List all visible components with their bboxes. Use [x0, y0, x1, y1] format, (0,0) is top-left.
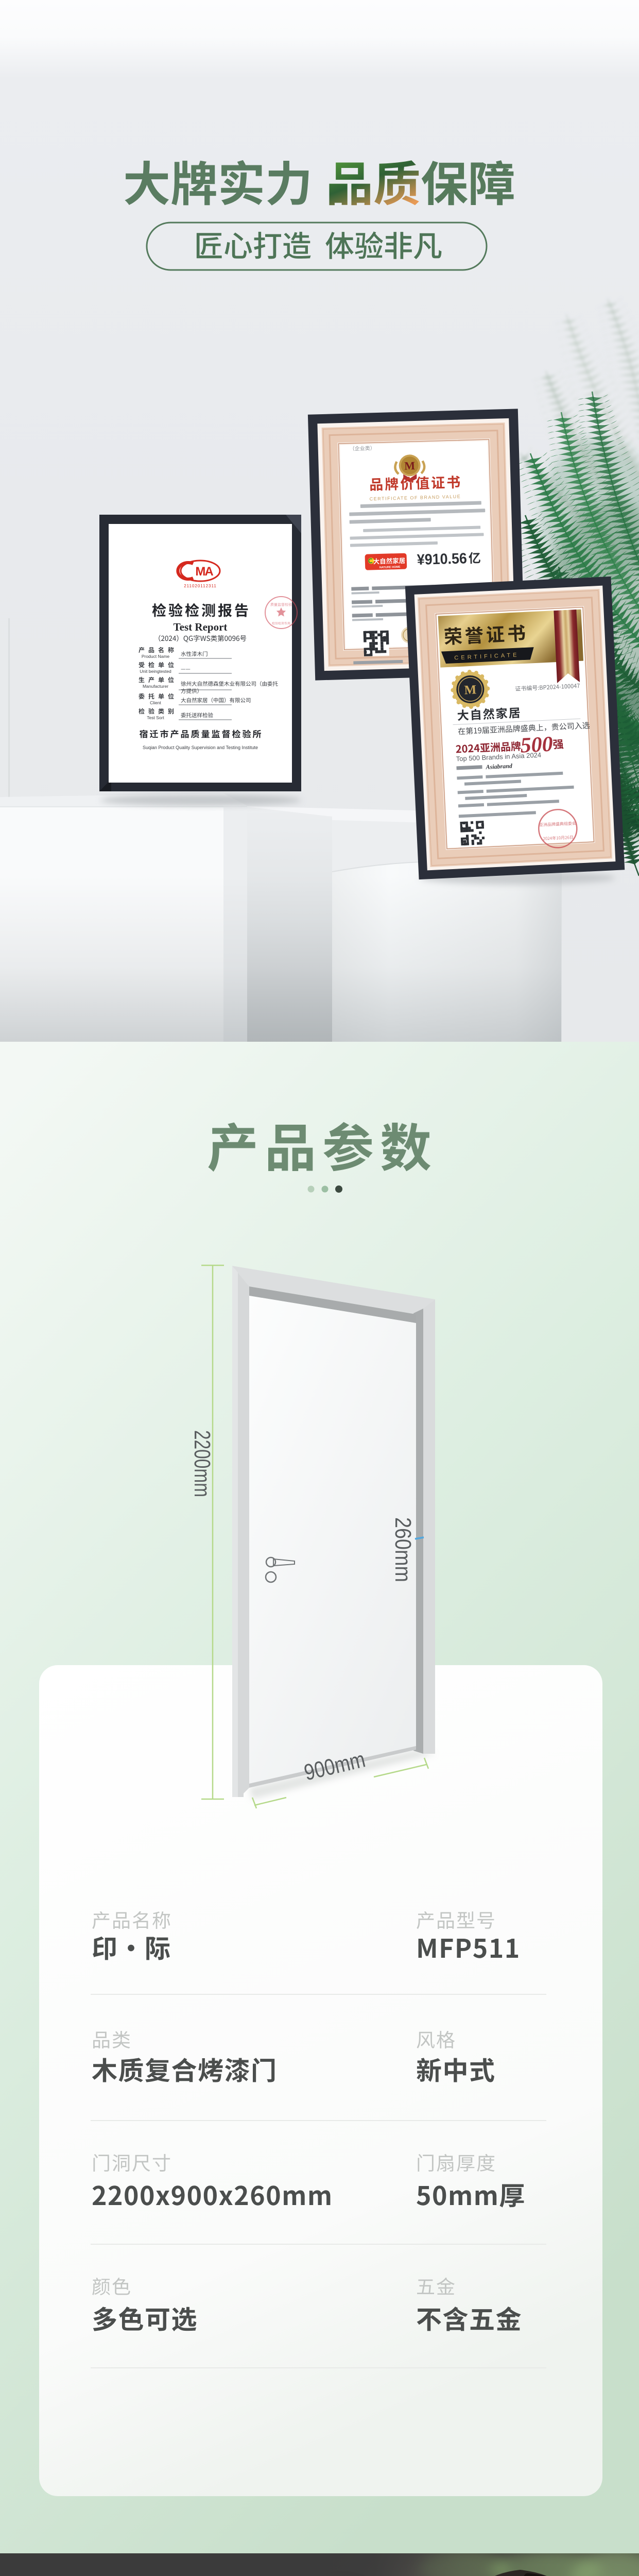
svg-text:MA: MA	[195, 565, 213, 579]
svg-text:Test Report: Test Report	[174, 621, 228, 633]
svg-text:Asiabrand: Asiabrand	[485, 762, 513, 770]
svg-text:¥910.56: ¥910.56	[417, 550, 467, 568]
svg-text:Test Sort: Test Sort	[147, 715, 164, 720]
svg-text:211020112311: 211020112311	[184, 584, 217, 588]
svg-text:M: M	[464, 683, 477, 697]
svg-text:Product Name: Product Name	[142, 654, 170, 659]
svg-text:NATURE HOME: NATURE HOME	[379, 566, 401, 569]
svg-text:Suqian Product Quality Supervi: Suqian Product Quality Supervision and T…	[143, 745, 258, 750]
svg-text:Client: Client	[150, 700, 161, 705]
svg-text:260mm: 260mm	[390, 1517, 416, 1582]
svg-text:Manufacturer: Manufacturer	[143, 684, 168, 689]
svg-text:2200mm: 2200mm	[189, 1430, 215, 1497]
svg-text:M: M	[404, 459, 416, 472]
svg-text:Unit beingtested: Unit beingtested	[140, 669, 171, 674]
